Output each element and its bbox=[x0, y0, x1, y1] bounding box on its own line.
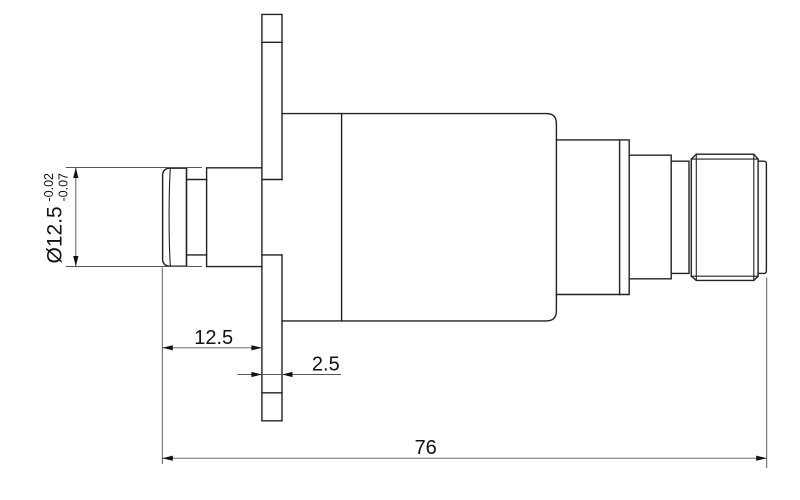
svg-text:12.5: 12.5 bbox=[194, 327, 233, 349]
svg-text:76: 76 bbox=[415, 437, 437, 459]
svg-text:2.5: 2.5 bbox=[312, 353, 340, 375]
svg-text:Ø12.5-0.02-0.07: Ø12.5-0.02-0.07 bbox=[42, 173, 71, 264]
